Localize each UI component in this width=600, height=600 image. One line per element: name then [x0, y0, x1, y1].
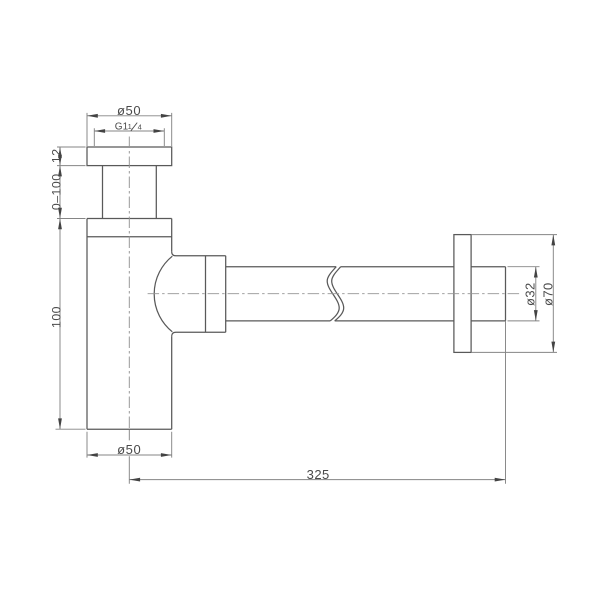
svg-text:1: 1: [128, 122, 132, 131]
svg-text:ø50: ø50: [117, 103, 141, 118]
svg-text:325: 325: [307, 467, 330, 482]
svg-text:ø70: ø70: [541, 282, 556, 306]
svg-text:100: 100: [49, 306, 63, 328]
svg-text:ø50: ø50: [117, 442, 141, 457]
svg-text:ø32: ø32: [523, 282, 538, 306]
svg-text:12: 12: [49, 148, 63, 163]
svg-text:G1: G1: [115, 121, 129, 132]
svg-text:4: 4: [138, 123, 142, 132]
svg-text:0–100: 0–100: [49, 173, 63, 210]
